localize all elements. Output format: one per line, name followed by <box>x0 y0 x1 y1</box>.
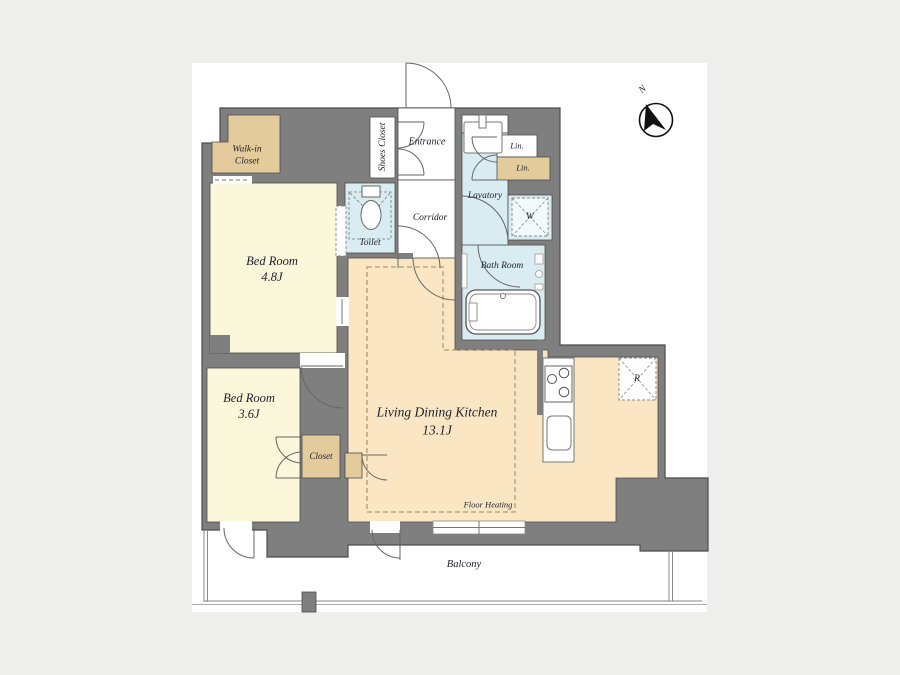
bathtub-drain <box>501 294 506 299</box>
balcony-pillar <box>302 592 316 612</box>
kitchen-sink <box>547 416 571 450</box>
toilet-tank <box>362 186 380 197</box>
linen-lower-floor <box>497 157 550 180</box>
shower-knob <box>536 271 543 278</box>
bedroom1-floor <box>210 183 337 353</box>
shoes-closet-floor <box>370 117 395 178</box>
burner-1 <box>548 375 557 384</box>
bath-shelf <box>462 254 467 288</box>
bedroom2-floor <box>207 368 300 522</box>
closet-floor <box>302 435 340 478</box>
floor-plan-stage: Walk-inCloset Bed Room4.8J Bed Room3.6J … <box>0 0 900 675</box>
pipe-shaft <box>336 206 346 256</box>
burner-3 <box>559 387 569 397</box>
shower-panel <box>535 254 543 264</box>
lavatory-faucet <box>479 115 486 128</box>
shower-tray <box>535 284 543 290</box>
corridor-floor <box>398 180 455 258</box>
linen-upper-floor <box>497 135 537 157</box>
kitchen-counter-wall-stub <box>537 340 543 415</box>
floor-plan-drawing <box>0 0 900 675</box>
bedroom2-balcony-gap <box>220 521 252 531</box>
bathtub-faucet <box>469 303 477 321</box>
burner-2 <box>559 368 569 378</box>
entrance-floor <box>398 108 455 180</box>
storage-floor <box>345 453 362 478</box>
ldk-balcony-door-gap <box>370 521 400 533</box>
toilet-bowl <box>361 201 381 230</box>
bedroom1-corner-pillar <box>210 335 230 353</box>
